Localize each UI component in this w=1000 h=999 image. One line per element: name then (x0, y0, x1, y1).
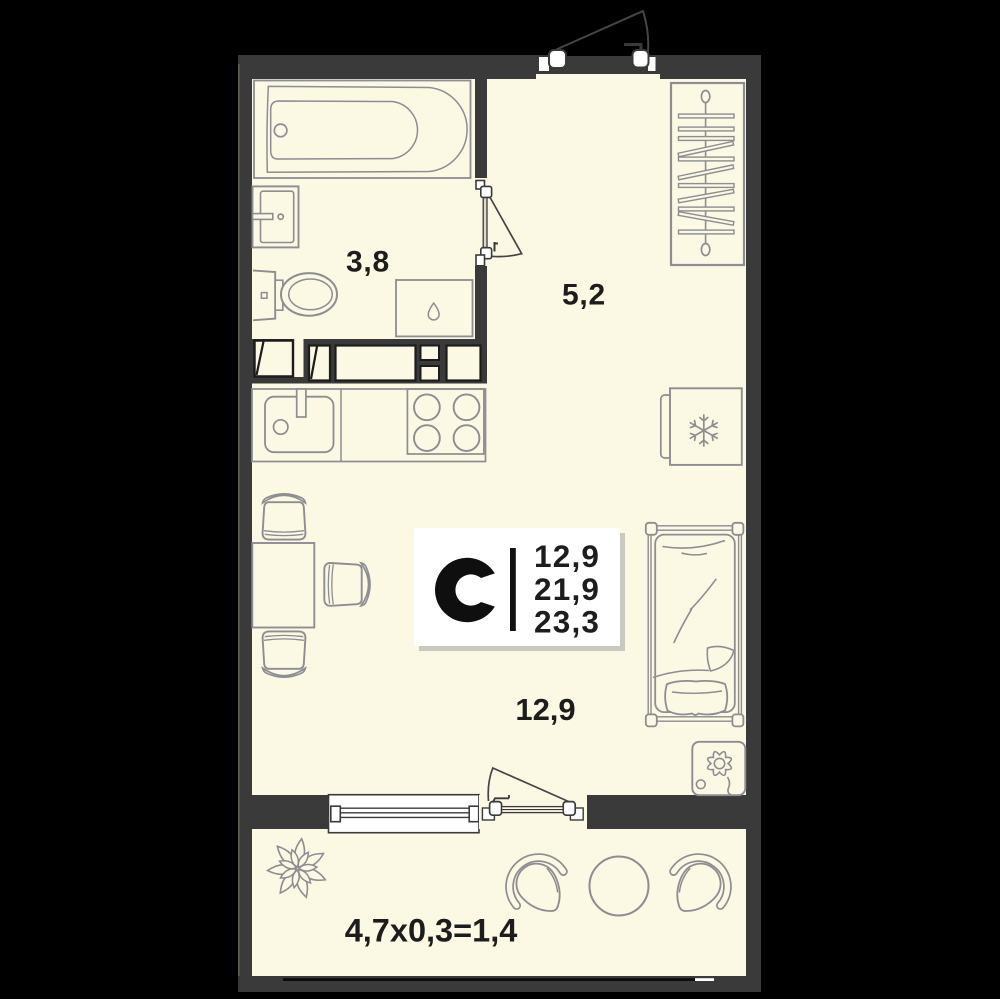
svg-text:23,3: 23,3 (534, 604, 600, 640)
svg-text:21,9: 21,9 (534, 571, 600, 607)
svg-text:12,9: 12,9 (534, 538, 600, 574)
svg-text:3,8: 3,8 (346, 245, 390, 278)
svg-text:5,2: 5,2 (562, 278, 606, 311)
svg-text:12,9: 12,9 (515, 692, 575, 727)
svg-text:4,7x0,3=1,4: 4,7x0,3=1,4 (345, 912, 518, 948)
